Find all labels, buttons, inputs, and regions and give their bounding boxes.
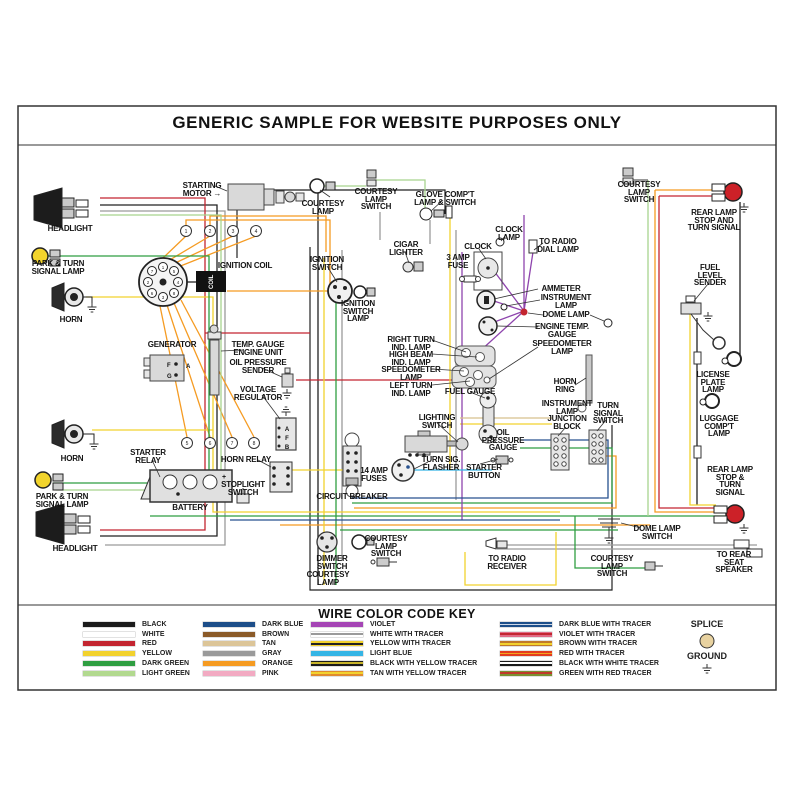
- wire-color-label: GREEN WITH RED TRACER: [559, 670, 652, 677]
- fuses-label: 14 AMP FUSES: [360, 467, 387, 482]
- wire-color-label: BROWN WITH TRACER: [559, 640, 637, 647]
- speedometer-lamp-label: SPEEDOMETER LAMP: [532, 340, 591, 355]
- rear-lamp-bottom-label: REAR LAMP STOP & TURN SIGNAL: [707, 466, 753, 496]
- headlight-bottom-label: HEADLIGHT: [53, 545, 98, 553]
- wire-color-swatch: [203, 622, 255, 627]
- ammeter-label: AMMETER: [541, 285, 580, 293]
- starter-button-label: STARTER BUTTON: [466, 464, 502, 479]
- wire-color-swatch: [311, 622, 363, 627]
- dimmer-switch-label: DIMMER SWITCH: [316, 555, 347, 570]
- courtesy-switch-bottom-right-label: COURTESY LAMP SWITCH: [591, 555, 634, 578]
- courtesy-switch-top-right-label: COURTESY LAMP SWITCH: [618, 181, 661, 204]
- park-turn-bottom-label: PARK & TURN SIGNAL LAMP: [36, 493, 89, 508]
- circuit-breaker-label: CIRCUIT BREAKER: [316, 493, 387, 501]
- wire-color-swatch: [500, 632, 552, 637]
- wire-color-label: BLACK WITH WHITE TRACER: [559, 660, 659, 667]
- fuel-gauge-label: FUEL GAUGE: [445, 388, 495, 396]
- voltage-regulator-label: VOLTAGE REGULATOR: [234, 386, 282, 401]
- starting-motor-label: STARTING MOTOR →: [183, 182, 222, 197]
- key-entry: TAN: [203, 640, 276, 647]
- key-entry: VIOLET: [311, 621, 395, 628]
- wire-color-label: RED WITH TRACER: [559, 650, 625, 657]
- horn-ring-label: HORN RING: [554, 378, 577, 393]
- key-entry: YELLOW: [83, 650, 172, 657]
- key-entry: DARK GREEN: [83, 660, 189, 667]
- wire-color-label: WHITE WITH TRACER: [370, 631, 444, 638]
- wire-color-label: LIGHT BLUE: [370, 650, 412, 657]
- wire-color-swatch: [83, 651, 135, 656]
- key-entry: WHITE WITH TRACER: [311, 631, 444, 638]
- wire-color-label: BLACK: [142, 621, 167, 628]
- oil-sender-label: OIL PRESSURE SENDER: [229, 359, 286, 374]
- wire-color-swatch: [311, 671, 363, 676]
- horn-bottom-label: HORN: [61, 455, 84, 463]
- key-entry: BLACK WITH YELLOW TRACER: [311, 660, 477, 667]
- wire-color-label: TAN WITH YELLOW TRACER: [370, 670, 467, 677]
- wire-color-label: ORANGE: [262, 660, 293, 667]
- key-entry: BLACK WITH WHITE TRACER: [500, 660, 659, 667]
- wire-color-label: RED: [142, 640, 157, 647]
- wire-color-label: BLACK WITH YELLOW TRACER: [370, 660, 477, 667]
- key-entry: WHITE: [83, 631, 165, 638]
- wire-color-swatch: [83, 632, 135, 637]
- key-entry: DARK BLUE WITH TRACER: [500, 621, 651, 628]
- key-entry: ORANGE: [203, 660, 293, 667]
- license-lamp-label: LICENSE PLATE LAMP: [696, 371, 729, 394]
- key-entry: LIGHT GREEN: [83, 670, 190, 677]
- generator-label: GENERATOR: [148, 341, 197, 349]
- radio-dial-label: TO RADIO DIAL LAMP: [537, 238, 579, 253]
- key-entry: VIOLET WITH TRACER: [500, 631, 635, 638]
- wire-color-swatch: [500, 671, 552, 676]
- wire-color-label: VIOLET WITH TRACER: [559, 631, 635, 638]
- clock-lamp-label: CLOCK LAMP: [495, 226, 522, 241]
- key-entry: RED: [83, 640, 157, 647]
- wire-color-label: DARK BLUE WITH TRACER: [559, 621, 651, 628]
- wire-color-swatch: [83, 622, 135, 627]
- ignition-switch-lamp-label: IGNITION SWITCH LAMP: [341, 300, 375, 323]
- left-turn-label: LEFT TURN IND. LAMP: [390, 382, 433, 397]
- battery-label: BATTERY: [172, 504, 208, 512]
- wiring-diagram-page: 154 836 27 COIL 12 34 56 78 FAG: [0, 0, 792, 792]
- courtesy-switch-bottom-center-label: COURTESY LAMP SWITCH: [365, 535, 408, 558]
- instrument-lamp-label: INSTRUMENT LAMP: [541, 294, 591, 309]
- park-turn-top-label: PARK & TURN SIGNAL LAMP: [32, 260, 85, 275]
- turn-signal-switch-label: TURN SIGNAL SWITCH: [593, 402, 623, 425]
- fuel-sender-label: FUEL LEVEL SENDER: [694, 264, 726, 287]
- wire-color-swatch: [500, 622, 552, 627]
- headlight-top-label: HEADLIGHT: [48, 225, 93, 233]
- starter-relay-label: STARTER RELAY: [130, 449, 166, 464]
- dome-switch-label: DOME LAMP SWITCH: [633, 525, 680, 540]
- wire-color-label: LIGHT GREEN: [142, 670, 190, 677]
- key-title: WIRE COLOR CODE KEY: [18, 607, 776, 621]
- wire-color-label: YELLOW WITH TRACER: [370, 640, 451, 647]
- clock-label: CLOCK: [464, 243, 491, 251]
- radio-receiver-label: TO RADIO RECEIVER: [487, 555, 526, 570]
- key-entry: YELLOW WITH TRACER: [311, 640, 451, 647]
- wire-color-label: WHITE: [142, 631, 165, 638]
- wire-color-swatch: [83, 641, 135, 646]
- right-turn-label: RIGHT TURN IND. LAMP: [387, 336, 434, 351]
- wire-color-swatch: [500, 661, 552, 666]
- key-entry: TAN WITH YELLOW TRACER: [311, 670, 467, 677]
- wire-color-swatch: [203, 632, 255, 637]
- wire-color-swatch: [203, 671, 255, 676]
- splice-label: SPLICE: [691, 619, 724, 629]
- page-title: GENERIC SAMPLE FOR WEBSITE PURPOSES ONLY: [18, 113, 776, 133]
- oil-gauge-label: OIL PRESSURE GAUGE: [482, 429, 524, 452]
- flasher-label: TURN SIG. FLASHER: [422, 456, 461, 471]
- glove-label: GLOVE COMP'T LAMP & SWITCH: [414, 191, 476, 206]
- courtesy-switch-top-label: COURTESY LAMP SWITCH: [355, 188, 398, 211]
- wire-color-swatch: [500, 641, 552, 646]
- junction-block-label: INSTRUMENT LAMP JUNCTION BLOCK: [542, 400, 592, 430]
- wire-color-label: VIOLET: [370, 621, 395, 628]
- stoplight-switch-label: STOPLIGHT SWITCH: [221, 481, 265, 496]
- amp-fuse-label: 3 AMP FUSE: [446, 254, 469, 269]
- ignition-coil-label: IGNITION COIL: [218, 262, 272, 270]
- wire-color-swatch: [311, 641, 363, 646]
- horn-top-label: HORN: [60, 316, 83, 324]
- label-overlay: GENERIC SAMPLE FOR WEBSITE PURPOSES ONLY…: [0, 0, 792, 792]
- key-entry: PINK: [203, 670, 279, 677]
- dome-lamp-label: DOME LAMP: [542, 311, 589, 319]
- ground-label: GROUND: [687, 651, 727, 661]
- horn-relay-label: HORN RELAY: [221, 456, 271, 464]
- courtesy-lamp-top-label: COURTESY LAMP: [302, 200, 345, 215]
- ignition-switch-label: IGNITION SWITCH: [310, 256, 344, 271]
- temp-gauge-unit-label: TEMP. GAUGE ENGINE UNIT: [232, 341, 285, 356]
- wire-color-swatch: [500, 651, 552, 656]
- high-beam-label: HIGH BEAM IND. LAMP: [389, 351, 433, 366]
- key-entry: LIGHT BLUE: [311, 650, 412, 657]
- wire-color-label: DARK BLUE: [262, 621, 303, 628]
- key-entry: GREEN WITH RED TRACER: [500, 670, 652, 677]
- wire-color-swatch: [311, 661, 363, 666]
- wire-color-swatch: [311, 651, 363, 656]
- key-entry: BROWN: [203, 631, 289, 638]
- wire-color-label: GRAY: [262, 650, 282, 657]
- key-entry: DARK BLUE: [203, 621, 303, 628]
- wire-color-swatch: [83, 671, 135, 676]
- wire-color-swatch: [311, 632, 363, 637]
- wire-color-label: BROWN: [262, 631, 289, 638]
- key-entry: RED WITH TRACER: [500, 650, 625, 657]
- luggage-lamp-label: LUGGAGE COMP'T LAMP: [699, 415, 738, 438]
- engine-temp-label: ENGINE TEMP. GAUGE: [535, 323, 589, 338]
- speedometer-lamp2-label: SPEEDOMETER LAMP: [381, 366, 440, 381]
- wire-color-swatch: [83, 661, 135, 666]
- rear-speaker-label: TO REAR SEAT SPEAKER: [715, 551, 752, 574]
- rear-lamp-top-label: REAR LAMP STOP AND TURN SIGNAL: [688, 209, 740, 232]
- wire-color-swatch: [203, 651, 255, 656]
- wire-color-label: TAN: [262, 640, 276, 647]
- wire-color-label: YELLOW: [142, 650, 172, 657]
- wire-color-swatch: [203, 641, 255, 646]
- wire-color-label: DARK GREEN: [142, 660, 189, 667]
- key-entry: GRAY: [203, 650, 282, 657]
- wire-color-swatch: [203, 661, 255, 666]
- key-entry: BLACK: [83, 621, 167, 628]
- cigar-label: CIGAR LIGHTER: [389, 241, 423, 256]
- lighting-switch-label: LIGHTING SWITCH: [419, 414, 456, 429]
- courtesy-lamp-bottom-label: COURTESY LAMP: [307, 571, 350, 586]
- key-entry: BROWN WITH TRACER: [500, 640, 637, 647]
- wire-color-label: PINK: [262, 670, 279, 677]
